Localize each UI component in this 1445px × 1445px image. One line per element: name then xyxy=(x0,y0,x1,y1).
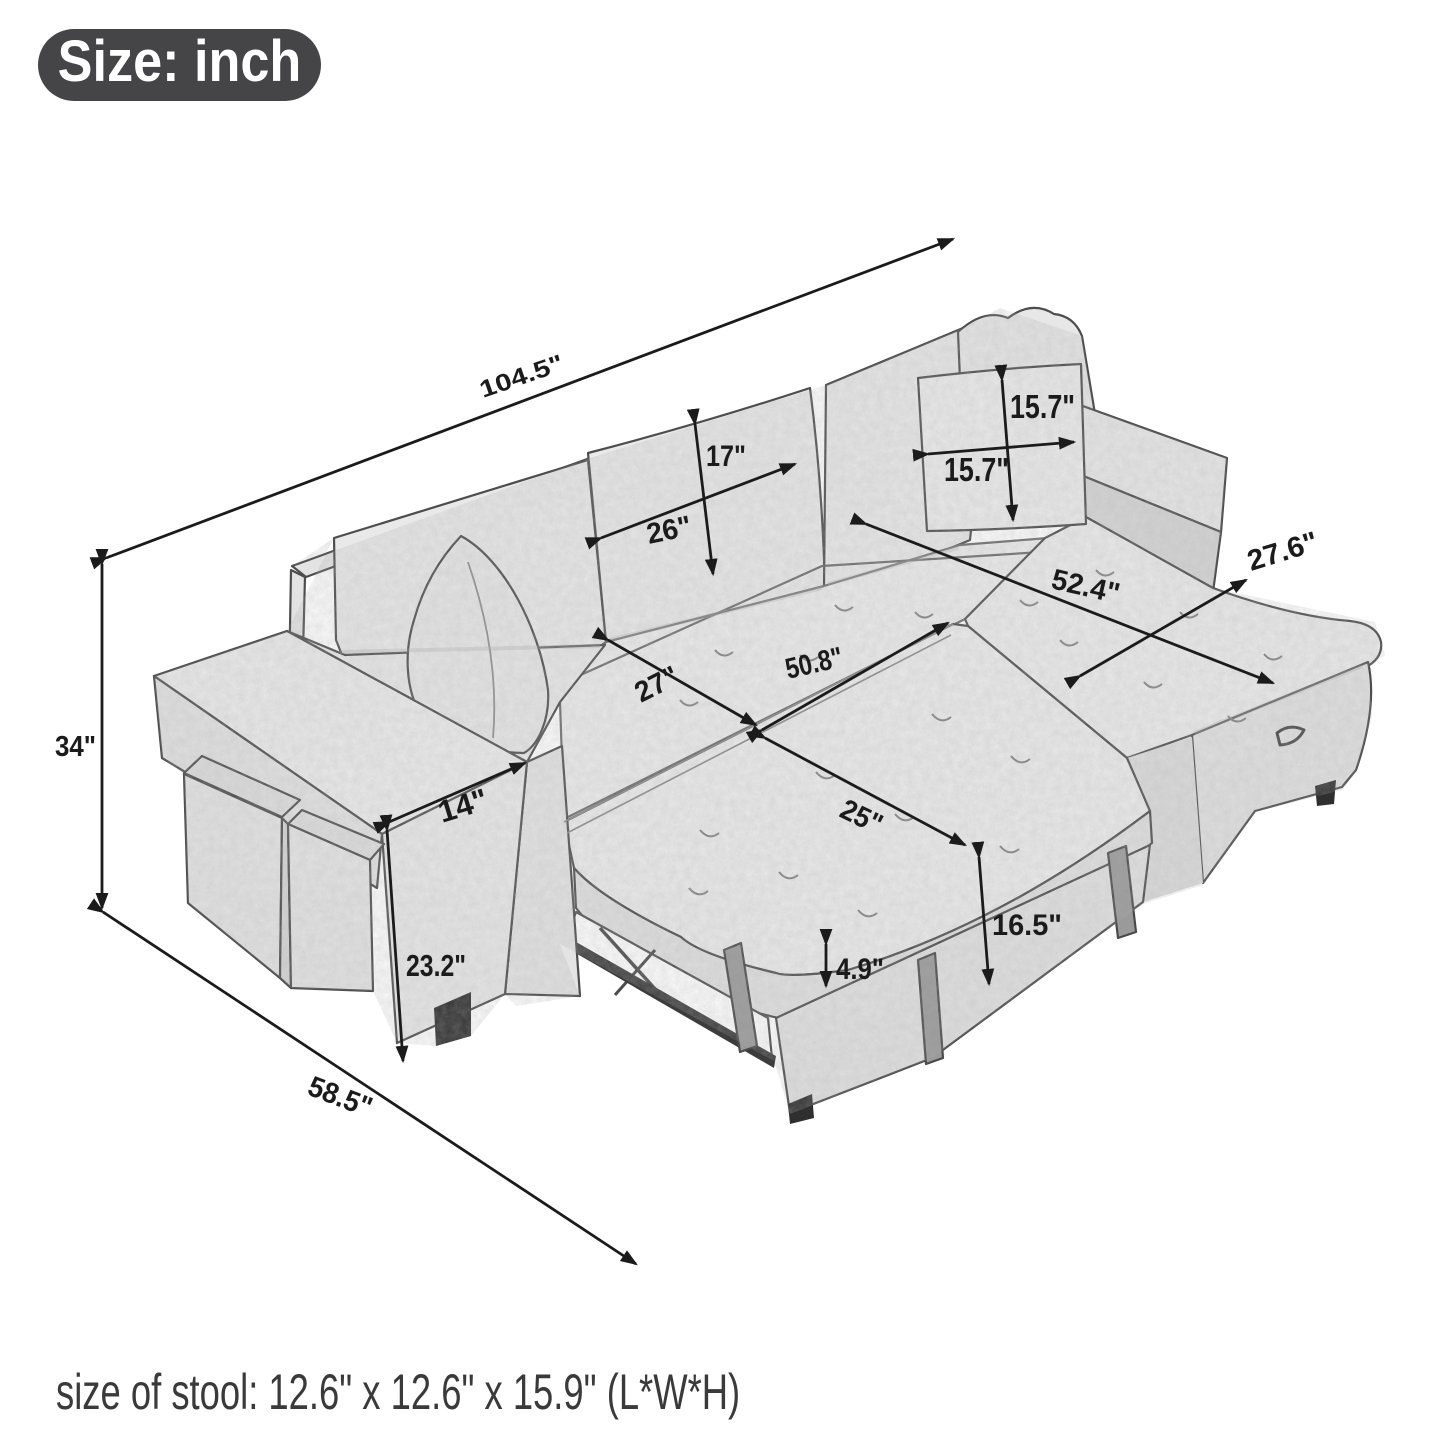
svg-text:34": 34" xyxy=(55,731,96,763)
svg-text:4.9": 4.9" xyxy=(836,953,884,986)
svg-text:17": 17" xyxy=(706,440,746,473)
svg-text:16.5": 16.5" xyxy=(992,909,1062,942)
svg-text:15.7": 15.7" xyxy=(1010,388,1075,425)
svg-text:15.7": 15.7" xyxy=(944,451,1009,488)
svg-text:27.6": 27.6" xyxy=(1244,526,1322,578)
svg-text:58.5": 58.5" xyxy=(303,1071,376,1125)
svg-text:23.2": 23.2" xyxy=(406,948,466,983)
svg-text:104.5": 104.5" xyxy=(476,350,567,404)
